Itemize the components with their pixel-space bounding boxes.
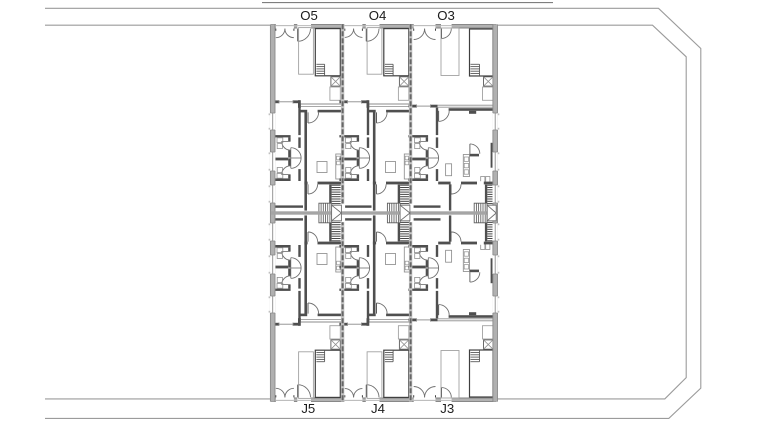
svg-text:O3: O3 bbox=[437, 8, 455, 23]
svg-text:O4: O4 bbox=[369, 8, 387, 23]
svg-text:J4: J4 bbox=[371, 401, 385, 416]
svg-text:J5: J5 bbox=[301, 401, 315, 416]
svg-text:O5: O5 bbox=[300, 8, 318, 23]
svg-text:J3: J3 bbox=[440, 401, 454, 416]
